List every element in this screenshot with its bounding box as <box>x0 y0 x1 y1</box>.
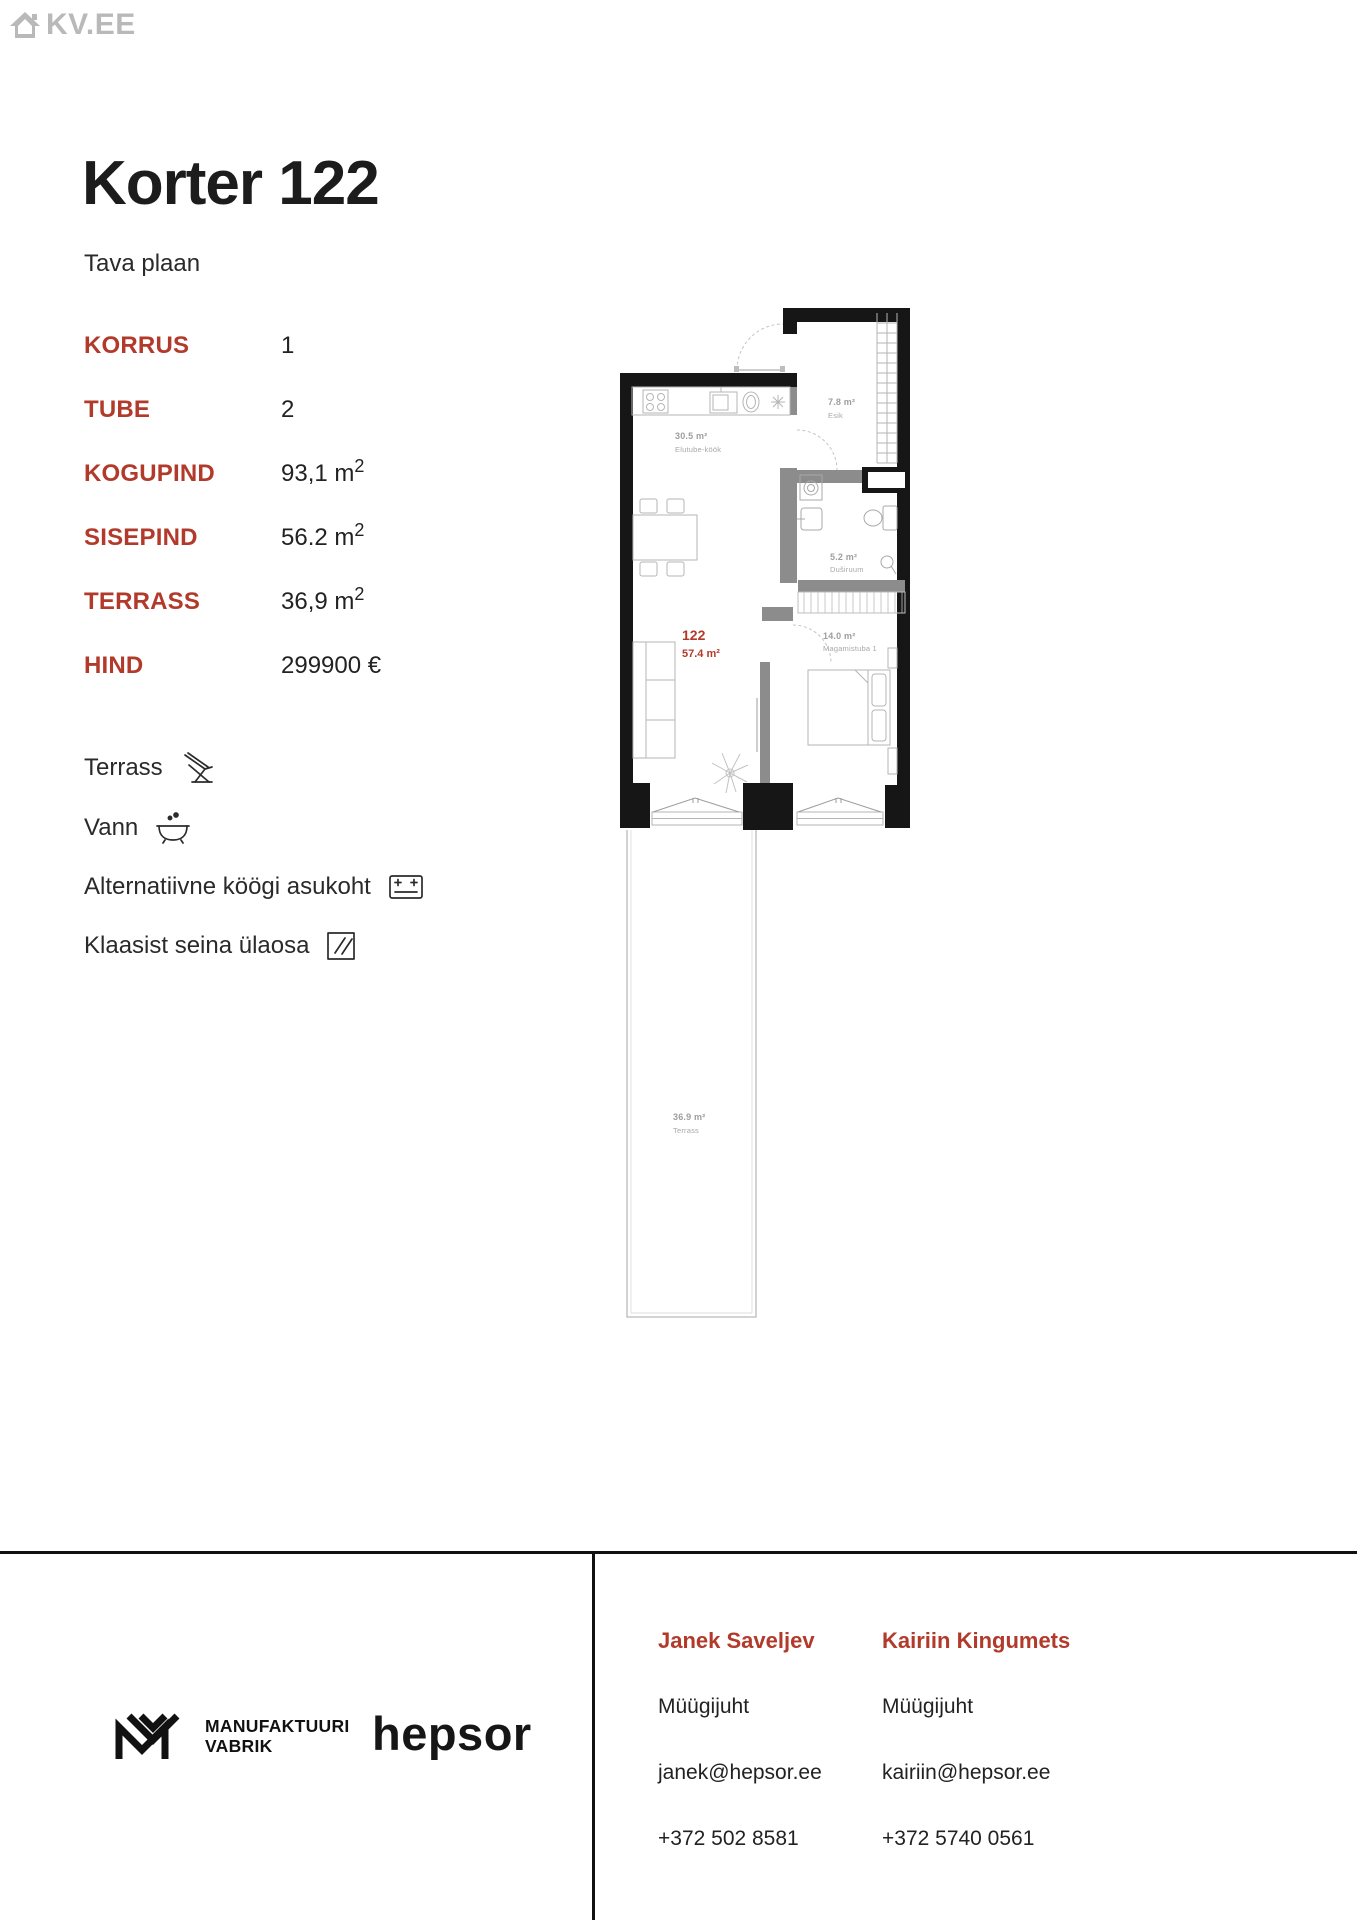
feature-label: Alternatiivne köögi asukoht <box>84 873 371 901</box>
detail-row-sisepind: SISEPIND 56.2 m2 <box>84 524 381 588</box>
plant <box>712 753 748 793</box>
room-name-label: Elutube-köök <box>675 445 721 454</box>
brand-line2: VABRIK <box>205 1736 350 1756</box>
detail-label: TERRASS <box>84 588 281 616</box>
detail-row-tube: TUBE 2 <box>84 396 381 460</box>
room-name-label: Magamistuba 1 <box>823 644 877 653</box>
wardrobe <box>798 592 905 613</box>
page-subtitle: Tava plaan <box>84 250 200 278</box>
room-area-label: 36.9 m² <box>673 1112 705 1122</box>
contact-phone: +372 5740 0561 <box>882 1826 1102 1852</box>
detail-row-terrass: TERRASS 36,9 m2 <box>84 588 381 652</box>
kitchen-counter <box>632 387 790 415</box>
manufaktuuri-vabrik-wordmark: MANUFAKTUURI VABRIK <box>205 1716 350 1756</box>
room-name-label: Duširuum <box>830 565 864 574</box>
contact-email: kairiin@hepsor.ee <box>882 1760 1102 1786</box>
kv-logo: KV.EE <box>8 8 136 42</box>
detail-value: 1 <box>281 332 381 360</box>
detail-row-kogupind: KOGUPIND 93,1 m2 <box>84 460 381 524</box>
bed <box>808 648 897 774</box>
unit-area: 57.4 m² <box>682 648 720 660</box>
contact-role: Müügijuht <box>658 1694 878 1720</box>
contact-email: janek@hepsor.ee <box>658 1760 878 1786</box>
entry-door <box>734 324 785 372</box>
house-icon <box>8 10 42 40</box>
bathroom-door <box>797 430 837 470</box>
stove-icon <box>387 872 425 902</box>
detail-label: SISEPIND <box>84 524 281 552</box>
detail-row-hind: HIND 299900 € <box>84 652 381 716</box>
detail-label: KOGUPIND <box>84 460 281 488</box>
footer-top-rule <box>0 1551 1357 1554</box>
glass-wall-icon <box>325 930 357 962</box>
detail-label: HIND <box>84 652 281 680</box>
detail-label: TUBE <box>84 396 281 424</box>
detail-value: 2 <box>281 396 381 424</box>
detail-value: 56.2 m2 <box>281 524 381 552</box>
dining-table <box>633 499 697 576</box>
feature-list: Terrass Vann Alternatiivne köögi asukoht <box>84 752 425 990</box>
page-title: Korter 122 <box>82 148 379 219</box>
interior-walls <box>760 387 905 783</box>
kv-logo-text: KV.EE <box>46 8 136 42</box>
room-name-label: Esik <box>828 411 843 420</box>
detail-value: 93,1 m2 <box>281 460 381 488</box>
contact-phone: +372 502 8581 <box>658 1826 878 1852</box>
feature-terrass: Terrass <box>84 752 425 784</box>
hepsor-wordmark: hepsor <box>372 1706 532 1761</box>
room-area-label: 5.2 m² <box>830 552 857 562</box>
detail-row-korrus: KORRUS 1 <box>84 332 381 396</box>
manufaktuuri-vabrik-icon <box>103 1712 195 1760</box>
feature-glass-wall: Klaasist seina ülaosa <box>84 930 425 962</box>
detail-label: KORRUS <box>84 332 281 360</box>
room-labels: 30.5 m² Elutube-köök 7.8 m² Esik 5.2 m² … <box>673 397 877 1135</box>
detail-value: 36,9 m2 <box>281 588 381 616</box>
room-name-label: Terrass <box>673 1126 699 1135</box>
sofa <box>633 642 675 758</box>
room-area-label: 30.5 m² <box>675 431 707 441</box>
footer-divider <box>592 1551 595 1920</box>
floor-plan: 30.5 m² Elutube-köök 7.8 m² Esik 5.2 m² … <box>600 240 930 1340</box>
unit-number: 122 <box>682 627 706 643</box>
feature-label: Vann <box>84 814 138 842</box>
room-area-label: 14.0 m² <box>823 631 855 641</box>
terrace <box>627 830 756 1317</box>
feature-alt-kitchen: Alternatiivne köögi asukoht <box>84 872 425 902</box>
brand-line1: MANUFAKTUURI <box>205 1716 350 1736</box>
bathtub-icon <box>154 812 192 844</box>
detail-value: 299900 € <box>281 652 381 680</box>
contact-name: Janek Saveljev <box>658 1628 878 1654</box>
contact-role: Müügijuht <box>882 1694 1102 1720</box>
contact-janek: Janek Saveljev Müügijuht janek@hepsor.ee… <box>658 1628 878 1892</box>
room-area-label: 7.8 m² <box>828 397 855 407</box>
details-table: KORRUS 1 TUBE 2 KOGUPIND 93,1 m2 SISEPIN… <box>84 332 381 716</box>
stairs <box>877 313 897 463</box>
deck-chair-icon <box>179 752 215 784</box>
contact-name: Kairiin Kingumets <box>882 1628 1102 1654</box>
feature-label: Terrass <box>84 754 163 782</box>
contact-kairiin: Kairiin Kingumets Müügijuht kairiin@heps… <box>882 1628 1102 1892</box>
feature-label: Klaasist seina ülaosa <box>84 932 309 960</box>
feature-vann: Vann <box>84 812 425 844</box>
